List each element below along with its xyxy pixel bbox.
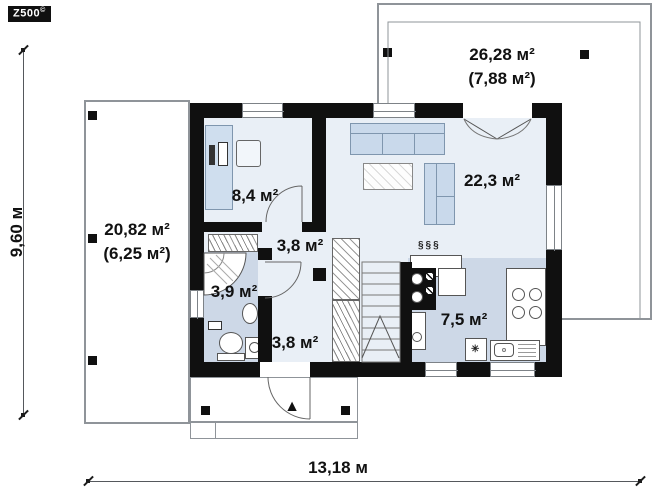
hall-entry-area-label: 3,8 м² <box>245 332 345 354</box>
terrace-top-outline <box>378 4 651 319</box>
hall-upper-area-label: 3,8 м² <box>250 235 350 257</box>
floor-plan: Z500© 9,60 м 13,18 м 20,82 м² (6,25 м²) … <box>0 0 655 491</box>
french-door-leaves <box>464 119 531 139</box>
stairs-treads <box>362 273 400 350</box>
office-area-label: 8,4 м² <box>205 185 305 207</box>
bathroom-area-label: 3,9 м² <box>184 281 284 303</box>
stairs-break-line <box>362 316 399 358</box>
entrance-door-arc <box>268 377 310 419</box>
living-room-area-label: 22,3 м² <box>442 170 542 192</box>
french-door-arcs <box>464 119 531 139</box>
kitchen-area-label: 7,5 м² <box>414 309 514 331</box>
